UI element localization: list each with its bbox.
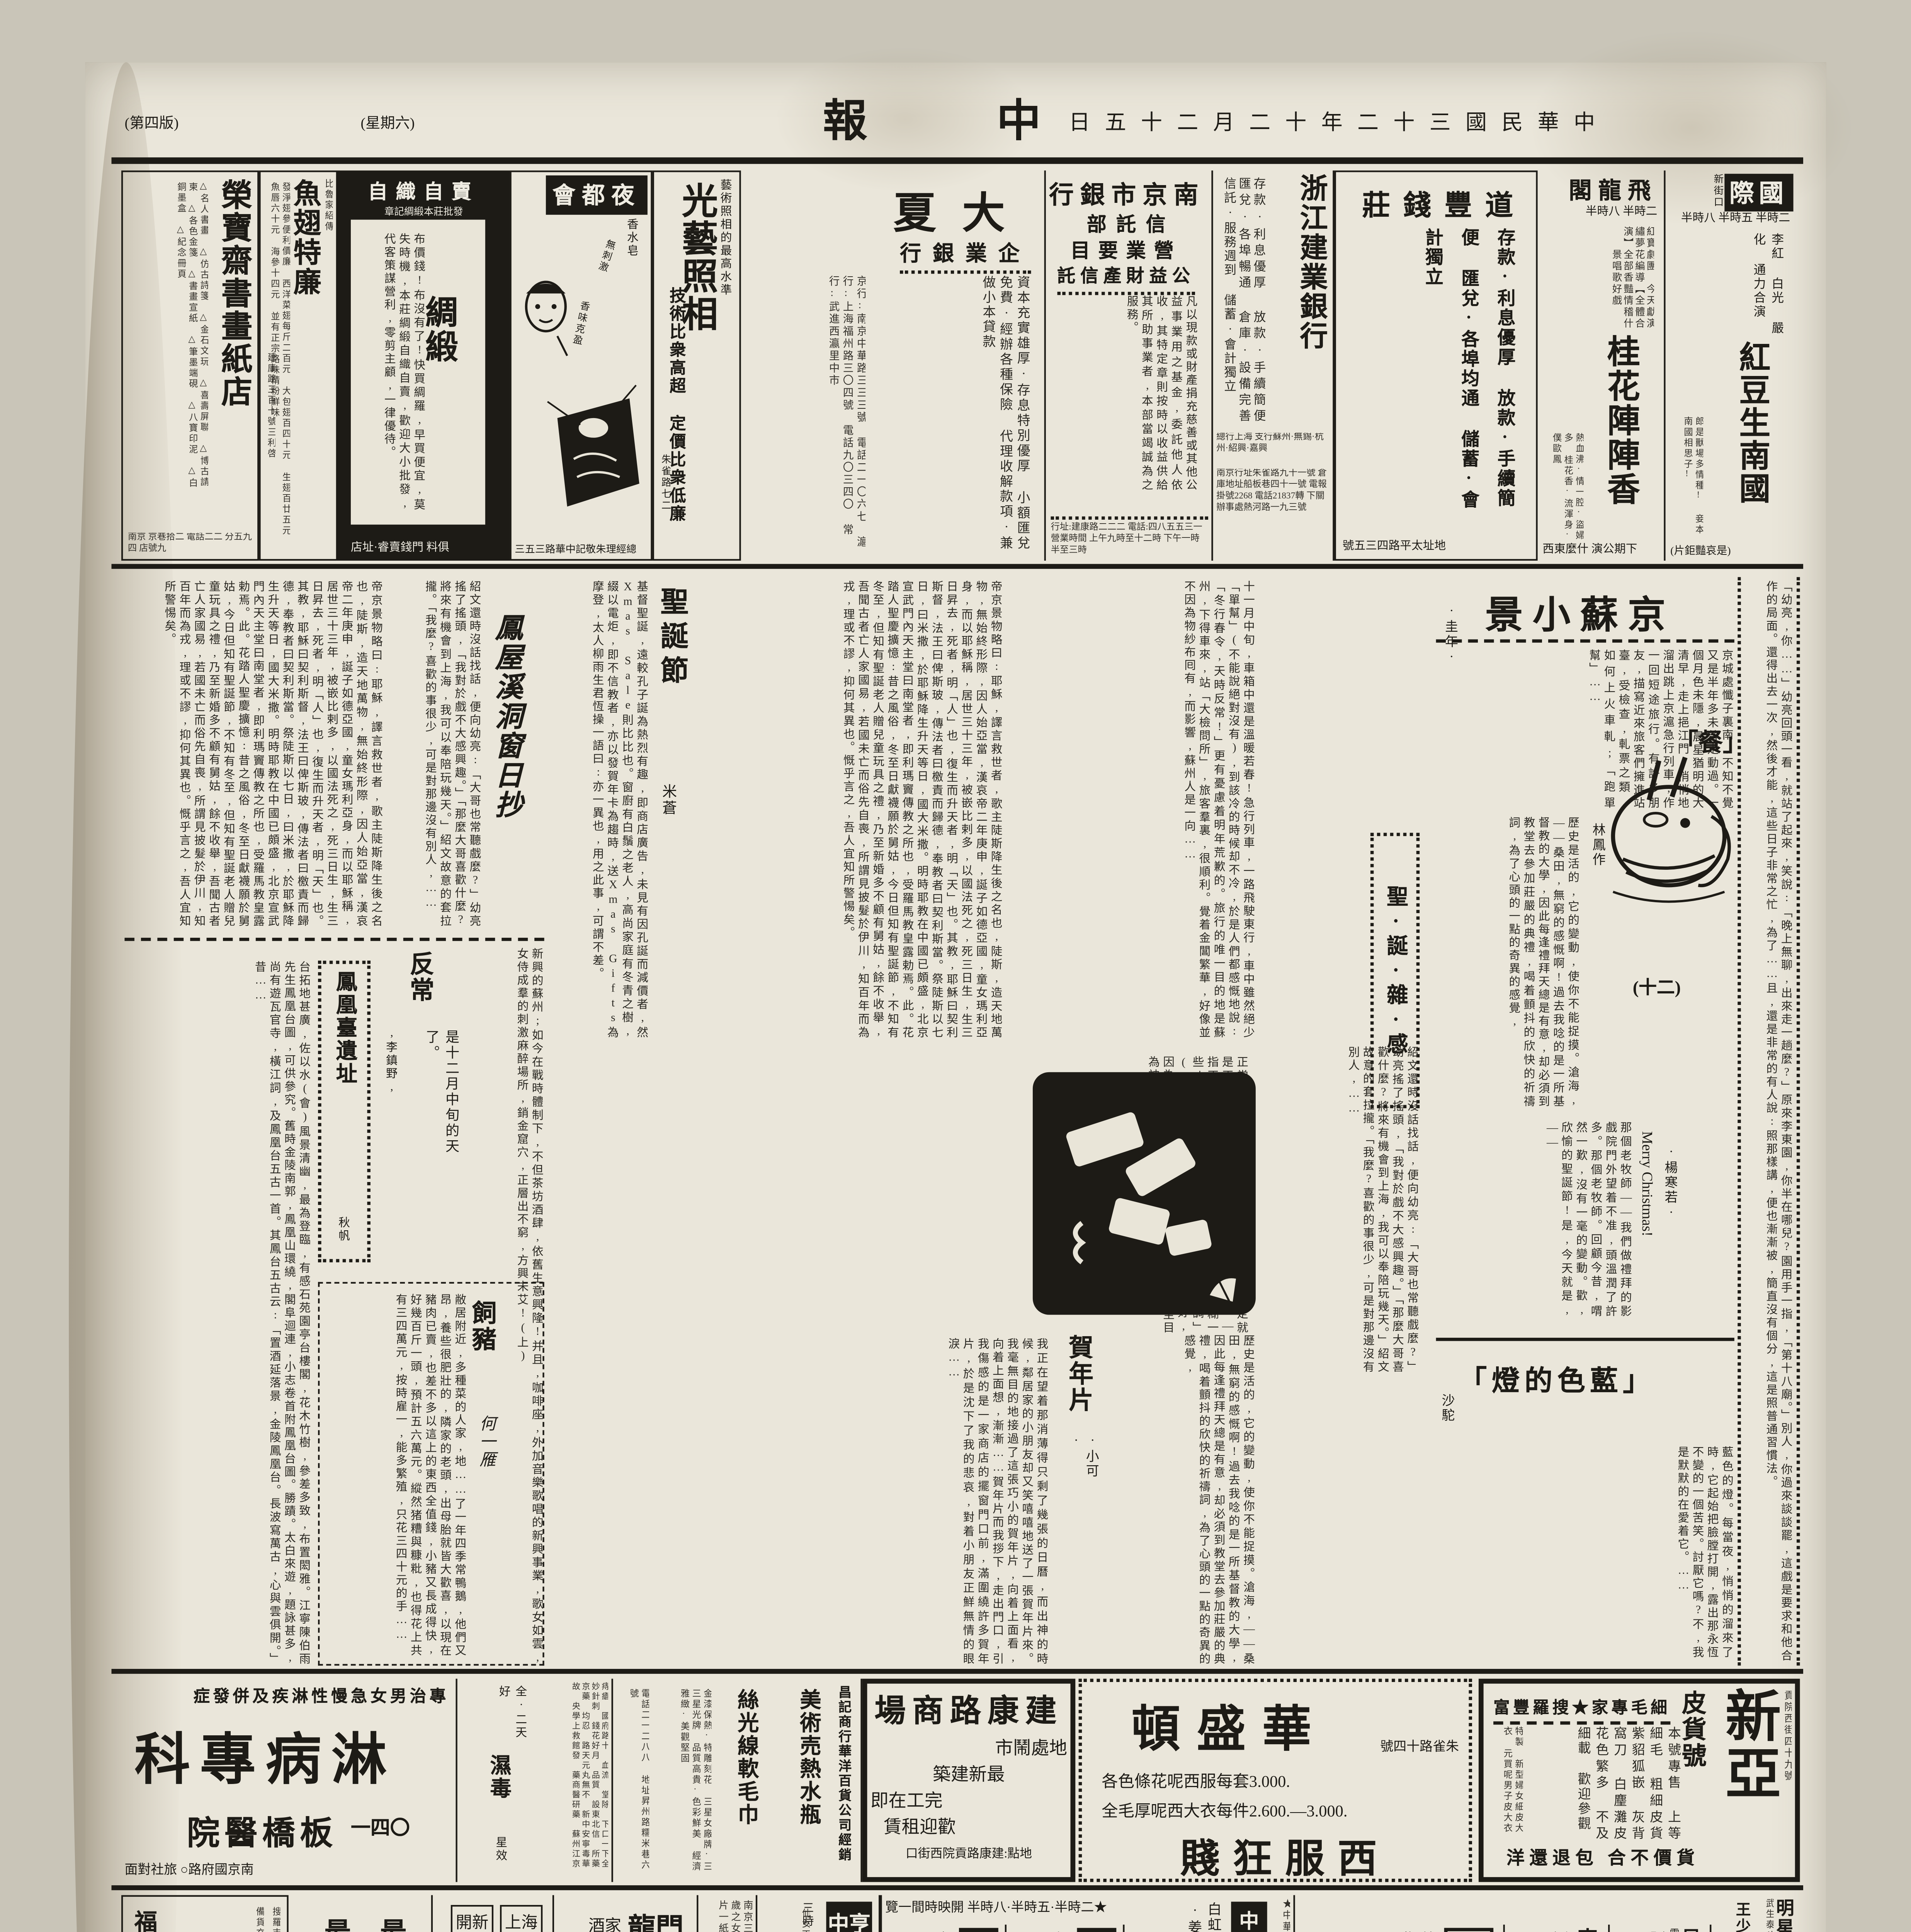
theater-logo: 中亨 (826, 1902, 872, 1932)
headline-box-fenghuang: 鳳凰臺遺址 秋帆 (318, 961, 371, 1262)
edition-label: (第四版) (124, 112, 179, 133)
ad-line: 部託信 (1087, 210, 1175, 238)
ad-items: 本號專售 上等細毛 粗細皮貨 紫貂狐嵌 灰背窩刀 白麈灘皮 花色繁多 不及細載 … (1529, 1726, 1683, 1841)
ad-longmen: 龍門 酒家 座位舒適·溫暖如春 水汀開放 讌會小吃·取價公道 中山路四一號·東和… (554, 1895, 698, 1932)
ad-huashengdun: 頓盛華 號四十路雀朱 各色條花呢西服每套3.000. 全毛厚呢西大衣每件2.60… (1079, 1679, 1472, 1882)
newspaper-page: (第四版) (星期六) 報 中 日五十二月二十年二十三國民華中 榮寶齋書畫紙店 … (0, 0, 1911, 1932)
ad-line: 託信產財益公 (1058, 262, 1195, 295)
ad-footer: 電話二一二八八 地址昇州路糯米巷六號 (616, 1689, 649, 1872)
showtimes: 半時八 半時五 半時二 (1681, 210, 1790, 226)
ad-band-sub: 章記綢緞本莊批發 (354, 203, 493, 218)
cinema-xinzhongyang: 新中央 舒適(主)·宛中·楊柳(演) ·最後一天· 夫婦之間 ·欲看從速· 明日… (1007, 1925, 1124, 1932)
ad-panel: 綢緞 布價錢!布沒有了!快買綢羅,早買便宜,莫失時機,本莊綢緞自織自賣,歡迎大小… (351, 220, 485, 525)
masthead-char-bao: 報 (823, 85, 867, 149)
ad-zuiming: 最名貴補品 最尊敬禮物 (289, 1895, 433, 1932)
article-body: 敝居附近,多種菜的人家,地……了一年四季常鴨鵝,他們又昂,養些很肥壯的,隣家的老… (326, 1293, 467, 1657)
cinema-minzhong: 民衆大舞台 電話:二三六六七 李宗義·李芝玉·傅德威·慈少泉·洪福通·錢元通 今… (1610, 1925, 1711, 1932)
ad-line: 市鬧處地 (870, 1735, 1067, 1761)
ad-linbing: 症發併及疾淋性慢急女男治專 科專病淋 院醫橋板 一四〇 面對社旅 ○路府國京南 (121, 1679, 452, 1882)
headline-fenghuang: 鳳凰臺遺址 (321, 971, 367, 1216)
divider (1436, 1338, 1734, 1341)
ad-addr: 朱雀路七二 (657, 454, 672, 553)
ad-list: △名人書畫 △仿古詩箋 △金石文玩 △喜壽屏聯 △博古請柬 △各色金箋 △書畫宣… (133, 182, 208, 493)
ad-phrases: 仙女下凡·各顯神通 (764, 1908, 810, 1932)
ad-head: 比魯家紹傳 (321, 179, 333, 342)
stars: 王少樓·劉琴心·王鴻福 (1715, 1902, 1754, 1932)
theater-logo: 大華 (1444, 1928, 1493, 1932)
ad-line: 最尊敬禮物 (313, 1918, 352, 1932)
ad-daofeng: 莊錢豐道 存款·利息優厚 放款·手續簡便 匯兌·各埠均通 儲蓄·會計獨立 號五三… (1335, 170, 1538, 561)
headline-landeng: 「燈的色藍」 (1459, 1357, 1656, 1398)
ad-title: 會都夜 (546, 175, 648, 215)
product-label: 香水皂 (624, 218, 641, 300)
cinema-times: 覽一間時映開 半時八·半時五·半時二★ (885, 1898, 1107, 1917)
ad-feilongge: 閣龍飛 半時八 半時二 紅寶劇團 今天獻演 繡夢花編導【全體合演】全部香豔情稽什… (1538, 170, 1666, 561)
classified-text: 痔瘡 國府路十 血流 堂除 下口一下全妙針刺 錢花好月 品質 設東北信 所藥 京… (542, 1682, 608, 1876)
ad-items: 存款·利息優厚 放款·手續簡便 匯兌·各埠均通 儲蓄·會計獨立 (1359, 228, 1523, 523)
ad-footer: 面對社旅 ○路府國京南 (124, 1861, 254, 1879)
ad-head: 富豐羅搜★家專毛細 (1493, 1694, 1670, 1725)
ad-yeduhui: 會都夜 香水皂 無刺激 香味克盈 三五三路華中記敬朱理經總 (510, 170, 652, 561)
section-rule (112, 1669, 1803, 1674)
masthead-char-zhong: 中 (997, 85, 1041, 149)
ad-footer: 行址:建康路二二二 電話:四八五五三一 營業時間 上午九時至十二時 下午一時半至… (1051, 516, 1208, 557)
sizhu-box: 飼豬 何一雁 敝居附近,多種菜的人家,地……了一年四季常鴨鵝,他們又昂,養些很肥… (318, 1282, 544, 1666)
cinema-dahua: 大華 妙趣喜劇 龔秋霞·徐立·呂玉堃·殷秀岑(主演) 方沛霖導演 兒子借印子錢·… (1295, 1925, 1505, 1932)
article-body: 歷史是活的,它的變動,使你不能捉摸。滄海,——桑田,無窮的感慨啊!過去我唸的是一… (1108, 1335, 1256, 1666)
section-rule (112, 564, 1803, 569)
merry-christmas-text: Merry Christmas! (1639, 1131, 1656, 1311)
headline-sizhu: 飼豬 (466, 1300, 500, 1398)
ad-offices: 京行:南京中華路三三三號 電話二一〇六七 滬行:上海福州路三〇四號 電話九〇三四… (751, 276, 865, 551)
byline: ·楊寒若· (1662, 1144, 1680, 1259)
ad-tag: 上海 (500, 1905, 542, 1932)
ad-lines: 紅寶劇團 今天獻演 繡夢花編導【全體合演】全部香豔情稽什景唱歌好戲 (1549, 223, 1654, 331)
shop-name: 福康參燕號 (129, 1910, 157, 1932)
product-label: 無刺激 (584, 237, 618, 304)
byline: 米蒼 (659, 784, 680, 833)
ad-yuanchangtai: 上海 開新 源昌泰皮貨局 時裝翻皮大衣·備貨高尚 各口粗細皮貨·售價特廉 太平路… (433, 1895, 554, 1932)
headline-underline (1436, 639, 1734, 643)
product-2: 絲光線軟毛巾 (731, 1689, 762, 1872)
cinema-daguangming: 大光明 李麗華·楊柳·梅熹·紅薇(主演) 合同記 明日獻映·祝英台 (882, 1925, 1007, 1932)
date-line: 日五十二月二十年二十三國民華中 (1069, 105, 1757, 136)
ad-title: 新亞 (1713, 1687, 1779, 1881)
product-1: 美術売熱水瓶 (793, 1689, 825, 1872)
ad-footer: 三五三路華中記敬朱理經總 (515, 541, 649, 556)
byline: 何一雁 (472, 1415, 497, 1513)
ad-head: 藝術照相的最高水準 (718, 179, 734, 441)
ad-body: 凡以現款或財產捐充慈善或其他公益事業用之基金,委託他人依收,其特定章則按時以收益… (1058, 295, 1199, 492)
ad-tags: 郎是獸場多情種! 妾本南國相思子! (1670, 417, 1703, 541)
headline-henian: 賀年片 (1062, 1335, 1097, 1423)
ad-title: 昌記商行華洋百貨公司經銷 (836, 1685, 854, 1875)
ad-title: 莊錢豐道 (1362, 182, 1526, 223)
ad-changji: 昌記商行華洋百貨公司經銷 美術売熱水瓶 絲光線軟毛巾 金漆保熱·特雕刻花 三星女… (613, 1679, 862, 1882)
ad-side: 特製 新型婦女細皮大衣 元買呢男子皮大衣 (1490, 1726, 1523, 1841)
cinema-nanjing: 南京大戲院 銀牡丹·張如麟·李毓丹 新牡丹·紅牡丹 今天日戲特演·六本 (夜戲接… (1505, 1925, 1610, 1932)
ad-footer: (片鉅豔哀是) (1670, 541, 1731, 557)
ad-jiankang: 場商路康建 市鬧處地 築建新最 即在工完 賃租迎歡 口街西院貢路康建:點地 (862, 1679, 1076, 1882)
ad-title: 濕毒 (484, 1754, 515, 1827)
ad-line: 目要業營 (1070, 236, 1182, 264)
shop-type: 酒家 (588, 1912, 621, 1932)
stars: 李紅 白光 嚴化 通力合演 (1688, 233, 1787, 338)
paper-sheet: (第四版) (星期六) 報 中 日五十二月二十年二十三國民華中 榮寶齋書畫紙店 … (0, 0, 1911, 1932)
ad-tag: 開新 (451, 1905, 493, 1932)
label: 武生泰斗出手大王 (1754, 1898, 1774, 1932)
phone: 電話:二三六六七 (1666, 1928, 1680, 1932)
byline: 沙駝 (1439, 1393, 1457, 1442)
ad-title: 科專病淋 (134, 1715, 397, 1795)
ad-line: 賃租迎歡 (884, 1813, 1067, 1839)
woman-face-illustration (518, 270, 574, 369)
ad-tags: 熱血沸·情一腔·盜婦多 桂花香·流渾身·僕歐鳳 (1544, 433, 1584, 548)
byline: ·小可· (1069, 1433, 1102, 1485)
ad-title: 頓盛華 (1131, 1689, 1328, 1761)
weekday-label: (星期六) (360, 112, 415, 133)
ad-sanlunche-notice: 南京三輪車公司招聘 分站站員 稽核員 啓事 招聘稽核員一名分站站員五名 須中學程… (698, 1895, 757, 1932)
headline-fengwu: 鳳屋溪洞窗日抄 (488, 613, 521, 859)
ad-fukang: 福康參燕號 搜羅吉林名山人參 備貨充足歡迎參觀 參 燕 銀 耳 售價低·不二價·… (121, 1895, 289, 1932)
price-line-1: 各色條花呢西服每套3.000. (1102, 1767, 1290, 1792)
ad-title: 浙江建業銀行 (1295, 174, 1326, 364)
article-body: 紹文還時沒話找話,便向幼亮:「大哥也常聽戲麼?」幼亮搖了搖頭,「我對於戲不大感興… (1262, 1046, 1420, 1374)
article-body: 我正在望着那消薄得只剩了幾張的日曆,而出神的時候,鄰居家的小朋友却又笑嘻嘻地送了… (558, 1338, 1049, 1666)
perfume-box-illustration (544, 369, 643, 517)
ad-xinya: 貢院西街四十九號 新亞 皮貨號 富豐羅搜★家專毛細 本號專售 上等細毛 粗細皮貨… (1479, 1679, 1800, 1882)
ad-yuchi: 比魯家紹傳 魚翅特廉 發淨翅參便利價廉 西洋菜翅每斤二百元 大包翅百四十元 生翅… (259, 170, 338, 561)
ad-footer: 建康路三百十號三利啓 (264, 352, 275, 556)
ad-title: 榮寶齋書畫紙店 (216, 179, 251, 552)
group-header: ★中華電影聯合股份有限公司管理·四大戲院 (1270, 1898, 1290, 1932)
theater-logo: 中華 (1231, 1902, 1267, 1932)
headline-shengdanjie: 聖誕節 (656, 587, 687, 692)
ad-footer: 店址·睿賣錢門 料俱 (351, 539, 498, 556)
article-body: 那個老牧師——我們做禮拜的影戲院門外望着不准,頭溫潤了許多。那個老牧師。回顧今昔… (1436, 1121, 1633, 1318)
masthead-rule (112, 157, 1803, 164)
article-body: 基督聖誕,遠較孔子誕為熱烈有趣,即商店廣告,未見有因孔誕而減價者,然Xmas S… (534, 580, 649, 1039)
ad-title: 場商路康建 (870, 1687, 1067, 1731)
ad-lines: 資本充實雄厚·存息特別優厚 小額匯兌免費·經辦各種保險 代理收解款項·兼做小本貸… (884, 276, 1031, 551)
headline-jingsu: 景小蘇京 (1485, 583, 1675, 639)
headline-fanchang: 反常 (403, 951, 438, 1023)
ad-guangyi: 藝術照相的最高水準 光藝照相 技術比衆高超 定價比衆低廉 朱雀路七二 (653, 170, 741, 561)
ad-line: 搜羅吉林名山人參 (269, 1906, 281, 1932)
theater-logo: 大光明 (959, 1928, 998, 1932)
theater-name: 閣龍飛 (1569, 174, 1657, 207)
printed-area: (第四版) (星期六) 報 中 日五十二月二十年二十三國民華中 榮寶齋書畫紙店 … (85, 62, 1826, 1932)
ad-rongbaozhai: 榮寶齋書畫紙店 △名人書畫 △仿古詩箋 △金石文玩 △喜壽屏聯 △博古請柬 △各… (121, 170, 259, 561)
shop-name: 龍門 (628, 1905, 683, 1932)
article-body: 十一月中旬,車箱中還是溫暖若春!急行列車,一路飛駛東行,車中雖然絕少「單幫」(不… (1007, 580, 1256, 1039)
ad-title: 行銀市京南 (1049, 177, 1205, 211)
ad-footer: 洋還退包 合不價貨 (1506, 1844, 1700, 1871)
ad-number: 一四〇 (351, 1813, 410, 1841)
ad-addr: 號四十路雀朱 (1380, 1738, 1459, 1756)
stars: 白虹·陳琦(主) 黃河·姜明(演) (1159, 1902, 1225, 1932)
cartoon-can: 「餐」 林鳳作 (十二) (1590, 724, 1747, 1000)
cinema-mingxing: 明星大戲院 武生泰斗出手大王 王少樓·劉琴心·王鴻福 今天日夜兩場 日場四本·夜… (1711, 1895, 1800, 1932)
price-line-2: 全毛厚呢西大衣每件2.600.—3.000. (1102, 1797, 1347, 1821)
film-title: 紅豆生南國 (1731, 341, 1770, 544)
ad-classified: 痔瘡 國府路十 血流 堂除 下口一下全妙針刺 錢花好月 品質 設東北信 所藥 京… (456, 1679, 613, 1882)
ad-chouduan: 自織自賣 章記綢緞本莊批發 綢緞 布價錢!布沒有了!快買綢羅,早買便宜,莫失時機… (338, 170, 510, 561)
article-body: 台拓地甚廣,佐以水(會)風景清幽,最為登臨,有感石苑園亭台樓閣,花木竹樹,參差多… (124, 961, 311, 1665)
ad-branches: 總行上海 支行蘇州·無錫·杭州·紹興·嘉興 (1216, 433, 1331, 456)
newyear-cards-illustration (1026, 1066, 1262, 1321)
ad-guoji: 際國 新街口 半時八 半時五 半時二 李紅 白光 嚴化 通力合演 紅豆生南國 郎… (1666, 170, 1797, 561)
article-body: 帝京景物略曰:耶穌,譯言救世者,歌主陡斯降生後之名也,陡斯,造天地萬物,無始終形… (689, 580, 1003, 1039)
ad-footer: 口街西院貢路康建:點地 (870, 1844, 1067, 1862)
ad-labels: 金漆保熱·特雕刻花 三星女廠牌·三三星光牌 品質高貴·色彩鮮美 經濟雅緻·美觀堅… (653, 1689, 712, 1872)
divider (124, 938, 544, 941)
film-title: 桂花陣陣香 (1598, 335, 1641, 531)
ad-footer: 號五三四路平太址地 (1343, 538, 1530, 554)
byline: 秋帆 (336, 1216, 352, 1259)
ad-items: 存款·利息優厚 放款·手續簡便 匯兌·各埠暢通 倉庫·設備完善 信託·服務週到 … (1218, 177, 1267, 423)
ad-line: 築建新最 (870, 1761, 1067, 1787)
ad-addr: 貢院西街四十九號 (1780, 1690, 1792, 1880)
ad-line: 最名貴補品 (369, 1918, 408, 1932)
ad-subtitle: 行銀業企 (900, 236, 1031, 274)
ad-head: 症發併及疾淋性慢急女男治專 (194, 1682, 449, 1707)
section-rule (112, 1885, 1803, 1890)
ad-zhongheng: 中亨 三時·五時半·八時 張靜·徐聽·張敏·曾佩筏 主演 仙女下凡·各顯神通 歌… (757, 1895, 882, 1932)
article-body: 紹文還時沒話找話,便向幼亮:「大哥也常聽戲麼?」幼亮搖了搖頭,「我對於戲不大感興… (390, 580, 482, 928)
ad-shiyin: 行銀市京南 部託信 目要業營 託信產財益公 凡以現款或財產捐充慈善或其他公益事業… (1046, 170, 1213, 561)
byline: ,李鎮野, (384, 1026, 400, 1108)
ad-line: 備貨充足歡迎參觀 (252, 1906, 264, 1932)
ad-band: 自織自賣 (354, 177, 493, 205)
ad-body: 布價錢!布沒有了!快買綢羅,早買便宜,莫失時機,本莊綢緞自織自賣,歡迎大小批發,… (357, 233, 426, 511)
ad-title: 夏大 (893, 180, 1031, 241)
bowl-illustration (1600, 751, 1738, 931)
ad-slogan: 賤狂服西 (1180, 1826, 1390, 1883)
theater-name: 南京大戲院 (1574, 1928, 1602, 1932)
article-body: 歷史是活的,它的變動,使你不能捉摸。滄海,——桑田,無窮的感慨啊!過去我唸的是一… (1426, 816, 1580, 1108)
cinema-zhonghua: ★中華電影聯合股份有限公司管理·四大戲院 中華 白虹·陳琦(主) 黃河·姜明(演… (1124, 1895, 1295, 1932)
ad-footer: 南京 京巷拾二 電話二二 分五九四 店號九 (128, 533, 256, 556)
ad-name: 院醫橋板 (187, 1806, 338, 1854)
cartoon-number: (十二) (1633, 974, 1681, 1000)
theater-name: 明星大戲院 (1770, 1898, 1797, 1932)
theater-logo: 新中央 (1077, 1928, 1116, 1932)
article-body: 帝京景物略曰:耶穌,譯言救世者,歌主陡斯降生後之名也,陡斯,造天地萬物,無始終形… (124, 580, 383, 928)
showtimes: 半時八 半時二 (1586, 203, 1658, 219)
theater-name: 民衆大舞台 (1677, 1928, 1703, 1932)
ad-title: 魚翅特廉 (289, 179, 320, 441)
ad-footer: 西東麼什 演公期下 (1542, 541, 1637, 557)
ad-line: 全·二天好 (497, 1685, 530, 1751)
article-body: 藍色的燈。每當夜,悄悄的溜來了時,它起始把臉膛打開,露出那永恆不變的一個苦笑。討… (1436, 1446, 1734, 1659)
ad-line: 星效 (493, 1836, 510, 1879)
ad-daxia: 夏大 行銀業企 資本充實雄厚·存息特別優厚 小額匯兌免費·經辦各種保險 代理收解… (741, 170, 1046, 561)
ad-line: 即在工完 (870, 1787, 1067, 1813)
ad-footer: 南京行址朱雀路九十一號 倉庫地址船板巷四十一號 電報掛號2268 電話21837… (1216, 469, 1331, 557)
ad-zhejiang: 浙江建業銀行 存款·利息優厚 放款·手續簡便 匯兌·各埠暢通 倉庫·設備完善 信… (1213, 170, 1335, 561)
cartoon-credit: 林鳳作 (1590, 823, 1608, 922)
theater-name: 際國 (1724, 174, 1793, 212)
